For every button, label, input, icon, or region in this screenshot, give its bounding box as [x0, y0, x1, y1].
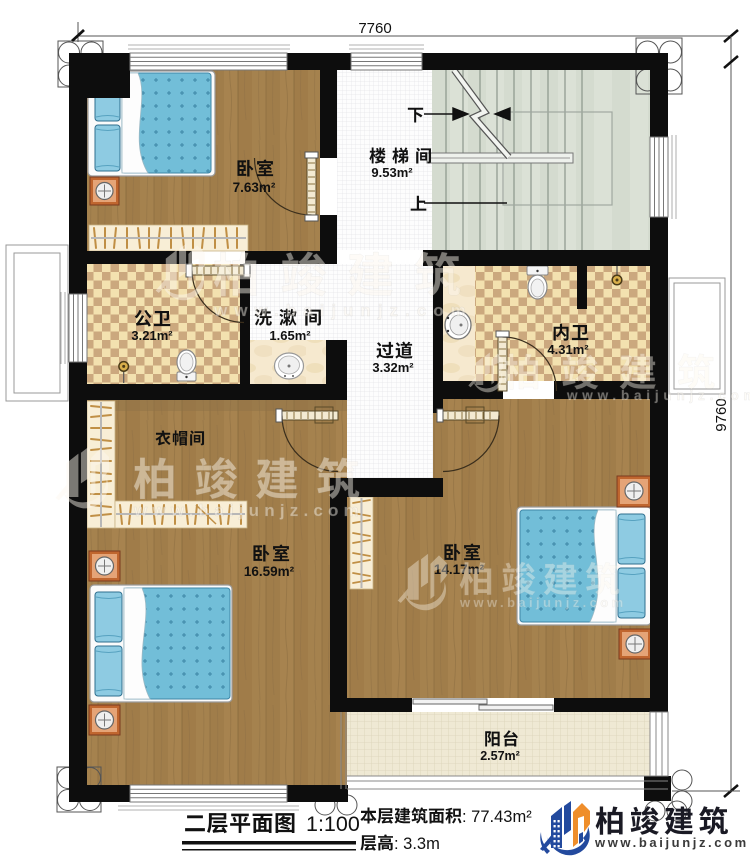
svg-text:9.53m²: 9.53m²: [371, 165, 413, 180]
svg-text:: 77.43m²: : 77.43m²: [462, 808, 532, 826]
svg-text:7.63m²: 7.63m²: [233, 180, 276, 195]
svg-text:1:100: 1:100: [306, 812, 360, 836]
svg-text:3.32m²: 3.32m²: [372, 360, 414, 375]
svg-text:: 3.3m: : 3.3m: [394, 835, 440, 853]
svg-text:2.57m²: 2.57m²: [480, 749, 520, 763]
svg-text:16.59m²: 16.59m²: [244, 564, 295, 579]
svg-text:3.21m²: 3.21m²: [131, 328, 173, 343]
svg-text:9760: 9760: [713, 398, 730, 431]
svg-text:www.baijunjz.com: www.baijunjz.com: [133, 501, 364, 520]
svg-text:www.baijunjz.com: www.baijunjz.com: [213, 301, 473, 320]
svg-text:www.baijunjz.com: www.baijunjz.com: [566, 388, 750, 403]
svg-text:www.baijunjz.com: www.baijunjz.com: [459, 595, 627, 610]
svg-text:1.65m²: 1.65m²: [269, 328, 311, 343]
svg-text:7760: 7760: [358, 20, 391, 37]
svg-text:www.baijunjz.com: www.baijunjz.com: [594, 835, 749, 850]
